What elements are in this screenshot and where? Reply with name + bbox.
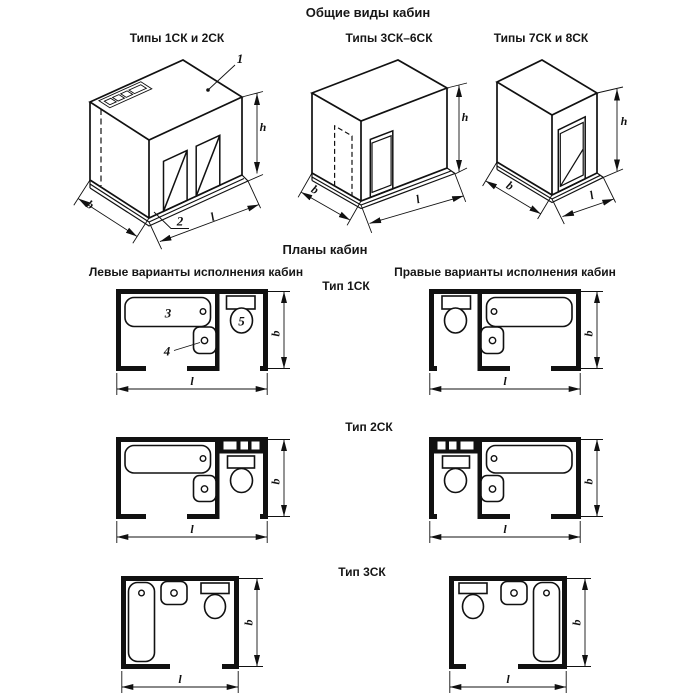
left-variants-header: Левые варианты исполнения кабин — [89, 265, 303, 279]
view-label-types-7-8: Типы 7СК и 8СК — [494, 31, 588, 45]
iso-view-types-7-8: b l h — [468, 53, 653, 228]
plans-section-title: Планы кабин — [282, 242, 367, 257]
dim-b-label: b — [504, 178, 516, 193]
dimension-l: l — [149, 181, 261, 249]
dim-b-label: b — [309, 182, 321, 197]
svg-text:4: 4 — [163, 344, 171, 359]
dim-l-label: l — [506, 672, 510, 686]
dimension-h: h — [597, 87, 628, 177]
plan-type3-label: Тип 3СК — [338, 565, 386, 579]
callout-floor-panel: 2 — [154, 212, 189, 229]
plan-type1-left: 3 4 5 l b — [116, 289, 294, 401]
dim-b-label: b — [570, 620, 584, 626]
dimension-l: l — [430, 373, 580, 395]
door-opening-1 — [164, 150, 188, 211]
dimension-h: h — [242, 92, 267, 182]
view-label-types-3-6: Типы 3СК–6СК — [345, 31, 432, 45]
dim-l-label: l — [190, 522, 194, 536]
iso-view-types-1-2: 1 2 b l h — [52, 48, 277, 253]
dimension-b: b — [483, 162, 552, 219]
dim-b-label: b — [582, 331, 596, 337]
rear-door-dashed-outline — [335, 126, 352, 196]
iso-view-types-3-6: b l h — [283, 53, 478, 233]
dimension-b: b — [563, 579, 591, 667]
plan-type3-right: l b — [449, 576, 604, 698]
dimension-l: l — [450, 671, 566, 693]
dimension-h: h — [447, 83, 469, 174]
dim-b-label: b — [582, 479, 596, 485]
dim-l-label: l — [190, 374, 194, 388]
callout-floor-number: 2 — [176, 214, 184, 229]
dim-b-label: b — [269, 479, 283, 485]
dimension-l: l — [430, 521, 580, 543]
plan-type2-label: Тип 2СК — [345, 420, 393, 434]
door-opening-2 — [196, 135, 220, 196]
view-label-types-1-2: Типы 1СК и 2СК — [130, 31, 224, 45]
dim-h-label: h — [621, 114, 628, 128]
dim-b-label: b — [84, 197, 97, 212]
cabin-plan-mirrored — [449, 576, 567, 669]
plan-type1-label: Тип 1СК — [322, 279, 370, 293]
dimension-l: l — [361, 174, 466, 233]
drawing-sheet: Общие виды кабин Типы 1СК и 2СК Типы 3СК… — [0, 0, 700, 700]
right-variants-header: Правые варианты исполнения кабин — [394, 265, 616, 279]
callout-roof-number: 1 — [237, 51, 244, 66]
dim-h-label: h — [260, 120, 267, 134]
dim-l-label: l — [414, 192, 422, 207]
dim-l-label: l — [588, 188, 596, 203]
plan-type1-right: l b — [429, 289, 607, 401]
callout-toilet: 5 — [238, 314, 245, 329]
cabin-plan — [116, 437, 268, 519]
plan-type3-left: l b — [121, 576, 276, 698]
cabin-plan — [121, 576, 239, 669]
dim-b-label: b — [269, 331, 283, 337]
cabin-plan-mirrored — [429, 437, 581, 519]
sheet-title: Общие виды кабин — [306, 5, 431, 20]
dim-b-label: b — [242, 620, 256, 626]
dim-l-label: l — [209, 209, 218, 224]
dimension-l: l — [122, 671, 238, 693]
dim-l-label: l — [503, 522, 507, 536]
dim-l-label: l — [503, 374, 507, 388]
dimension-l: l — [117, 521, 267, 543]
dimension-b: b — [235, 579, 263, 667]
cabin-plan-mirrored — [429, 289, 581, 371]
door-opening — [370, 131, 393, 198]
plan-type2-right: l b — [429, 437, 607, 549]
cabin-plan — [116, 289, 268, 371]
callout-bathtub: 3 — [164, 306, 172, 321]
dim-l-label: l — [178, 672, 182, 686]
dimension-l: l — [117, 373, 267, 395]
plan-type2-left: l b — [116, 437, 294, 549]
door-opening — [558, 117, 585, 192]
